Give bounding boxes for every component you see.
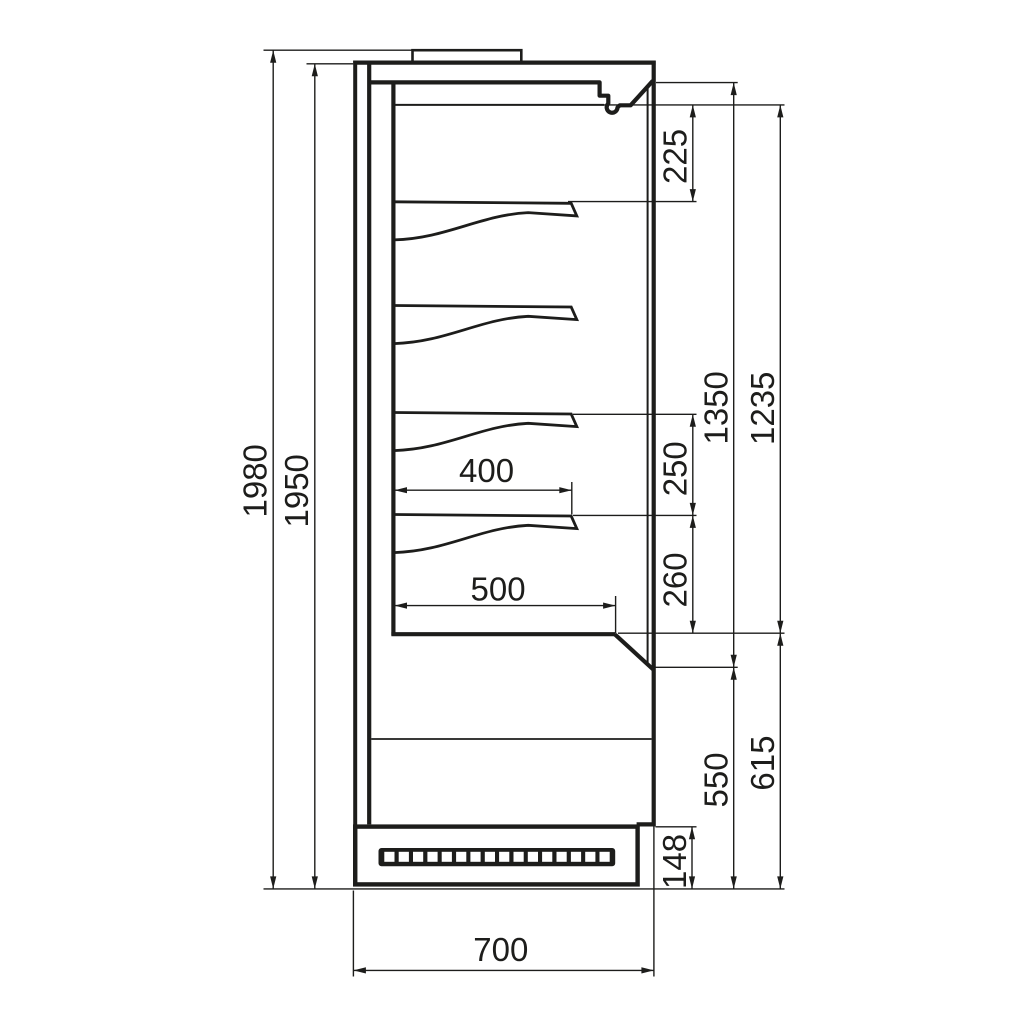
- svg-text:1980: 1980: [237, 444, 274, 517]
- svg-text:1950: 1950: [278, 454, 315, 527]
- svg-text:148: 148: [656, 834, 693, 889]
- svg-text:260: 260: [657, 552, 694, 607]
- svg-text:1350: 1350: [698, 371, 735, 444]
- svg-text:400: 400: [459, 452, 514, 489]
- svg-text:1235: 1235: [744, 372, 781, 445]
- svg-text:250: 250: [657, 441, 694, 496]
- svg-text:615: 615: [744, 736, 781, 791]
- svg-text:700: 700: [473, 931, 528, 968]
- svg-text:225: 225: [657, 129, 694, 184]
- svg-text:500: 500: [471, 571, 526, 608]
- svg-text:550: 550: [698, 752, 735, 807]
